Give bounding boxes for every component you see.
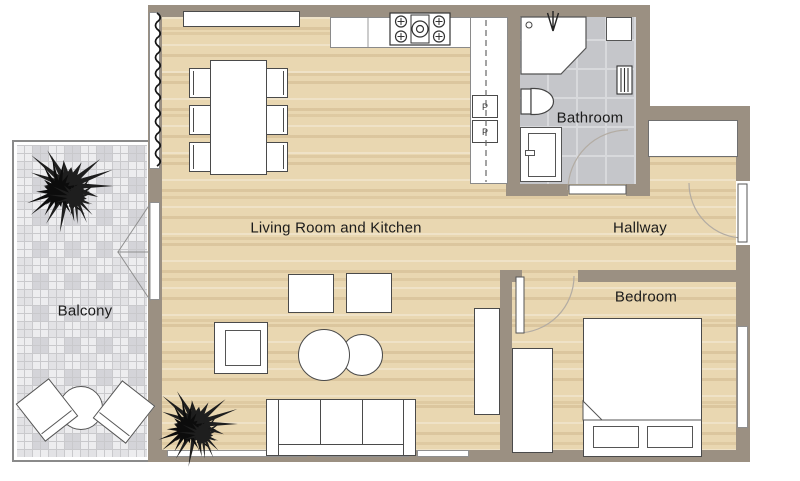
chair-back-line	[283, 71, 284, 95]
outside-area	[650, 0, 800, 106]
pouf-table-2	[346, 273, 392, 313]
bathroom-cabinet	[606, 17, 632, 41]
wall-hallway-top	[636, 106, 750, 120]
wall-bedroom-top-b	[578, 270, 736, 282]
pillow	[647, 426, 693, 448]
room-label-balcony: Balcony	[58, 303, 113, 320]
wall-bathroom-bottom-b	[626, 184, 650, 196]
dining-table	[210, 60, 267, 175]
dining-chair	[189, 68, 211, 98]
sofa-back-line	[278, 444, 404, 445]
sideboard	[183, 11, 300, 27]
dining-chair	[266, 105, 288, 135]
entrance-door-opening	[736, 181, 750, 245]
chair-back-line	[283, 108, 284, 132]
chair-back-line	[193, 71, 194, 95]
window-left	[149, 12, 160, 169]
floor-plan: P P	[0, 0, 800, 481]
chair-back-line	[283, 145, 284, 169]
hallway-closet	[648, 120, 738, 157]
bedroom-wardrobe	[512, 348, 553, 453]
room-label-bathroom: Bathroom	[557, 110, 624, 127]
chair-back-line	[193, 145, 194, 169]
wall-bathroom-left	[506, 5, 520, 196]
appliance-box-top: P	[472, 95, 498, 118]
room-label-living: Living Room and Kitchen	[250, 220, 421, 237]
pillow	[593, 426, 639, 448]
tv-stand	[474, 308, 500, 415]
window-bedroom-right	[737, 326, 748, 428]
window-bottom-3	[417, 450, 469, 457]
dining-chair	[189, 105, 211, 135]
wall-bathroom-bottom-a	[506, 184, 568, 196]
sofa-arm-line	[278, 400, 279, 455]
armchair-seat	[225, 330, 261, 366]
bed	[583, 318, 702, 457]
chair-back-line	[193, 108, 194, 132]
armchair	[214, 322, 268, 374]
plant-icon	[20, 138, 116, 234]
vanity	[520, 127, 562, 182]
balcony-door-opening	[149, 202, 160, 300]
vanity-handle	[525, 150, 535, 156]
sofa	[266, 399, 416, 456]
wall-bathroom-right	[636, 5, 650, 196]
sofa-arm-line	[403, 400, 404, 455]
sofa-cushion-line	[362, 400, 363, 444]
wall-bedroom-left	[500, 270, 512, 462]
appliance-box-bottom: P	[472, 120, 498, 143]
plant-icon	[152, 380, 240, 468]
coffee-table-large	[298, 329, 350, 381]
sofa-cushion-line	[320, 400, 321, 444]
dining-chair	[266, 68, 288, 98]
dining-chair	[266, 142, 288, 172]
dining-chair	[189, 142, 211, 172]
pouf-table-1	[288, 274, 334, 313]
room-label-hallway: Hallway	[613, 220, 667, 237]
room-label-bedroom: Bedroom	[615, 289, 677, 306]
